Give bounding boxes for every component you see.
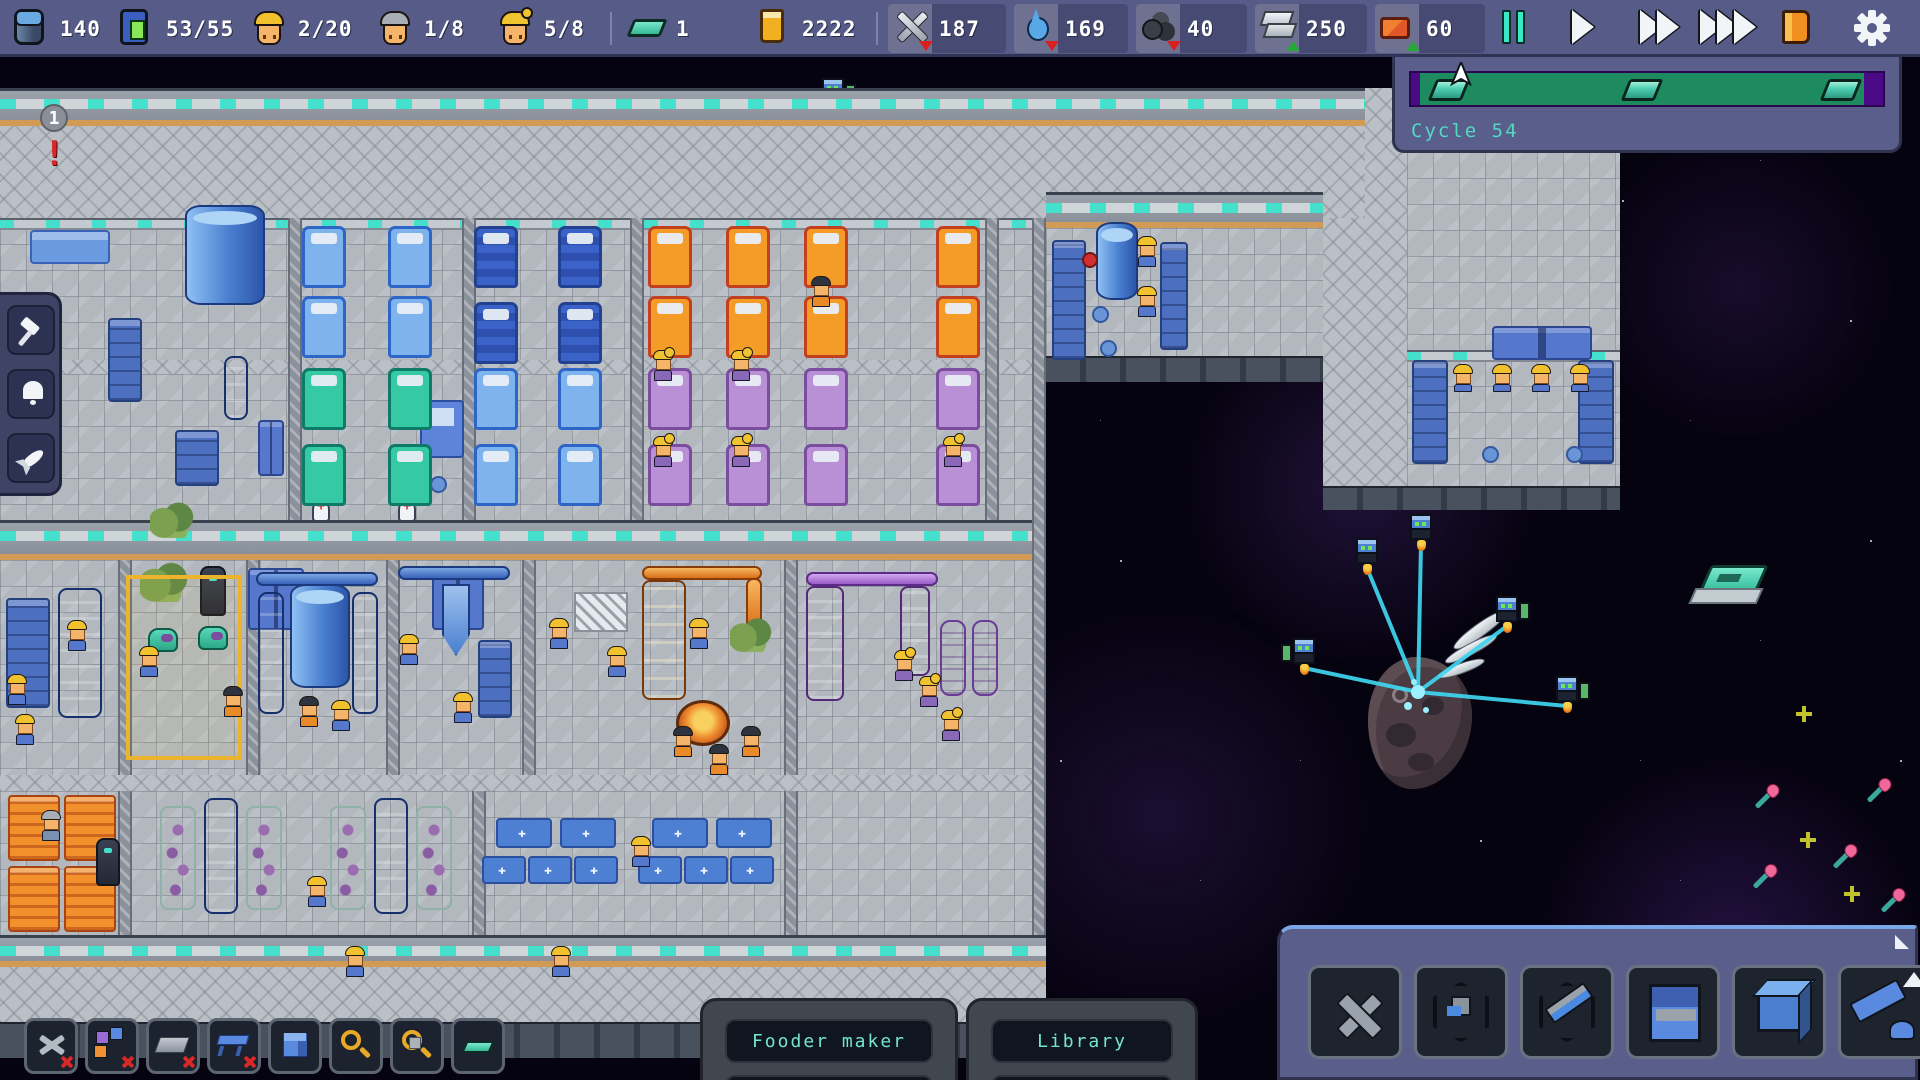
bed-build-button[interactable] <box>1626 965 1720 1059</box>
station-lightstrip <box>0 218 1046 230</box>
bed-pillow <box>397 451 423 462</box>
crew-body <box>454 712 472 723</box>
energy-cell-icon <box>120 9 156 49</box>
asteroid[interactable] <box>1368 657 1472 789</box>
zoom-out-icon <box>341 1030 361 1050</box>
crew-worker[interactable] <box>138 646 160 678</box>
crew-worker[interactable] <box>1569 364 1591 390</box>
hull-block-bit <box>1451 996 1471 1016</box>
gem-plate-item[interactable] <box>1699 565 1769 591</box>
robot-machine[interactable] <box>96 838 120 886</box>
stool-machine[interactable] <box>1100 340 1117 357</box>
mining-drone[interactable] <box>1496 596 1518 630</box>
crew-head <box>334 710 349 720</box>
crew-blonde[interactable] <box>942 436 964 468</box>
plant-machine[interactable] <box>150 500 194 538</box>
station-divider <box>288 218 302 520</box>
drone-body <box>1556 690 1578 702</box>
water-tank-icon <box>14 9 50 49</box>
ppipe-machine[interactable] <box>806 572 938 586</box>
crew-dark[interactable] <box>222 686 244 718</box>
crew-blonde[interactable] <box>730 436 752 468</box>
crew-body <box>552 966 570 977</box>
tankcol-machine[interactable] <box>58 588 102 718</box>
game-screen: ✚✚✚✚✚✚✚✚✚✚ 14053/552/201/85/812222187169… <box>0 0 1920 1080</box>
stool-machine[interactable] <box>1566 446 1583 463</box>
crew-dark[interactable] <box>708 744 730 776</box>
crew-hat <box>741 726 761 736</box>
console-machine[interactable] <box>1160 242 1188 350</box>
mining-drone[interactable] <box>1410 514 1432 548</box>
tankcol-machine[interactable] <box>258 592 284 714</box>
bed-pillow <box>657 303 683 314</box>
crew-head <box>712 754 727 764</box>
tankcol-machine[interactable] <box>374 798 408 914</box>
demolish-furniture-button[interactable] <box>207 1018 261 1074</box>
crew-worker[interactable] <box>630 836 652 868</box>
crew-worker[interactable] <box>688 618 710 650</box>
mining-drone[interactable] <box>1293 638 1315 672</box>
food-icon <box>893 9 929 49</box>
settings-button[interactable] <box>1852 8 1892 48</box>
crew-hat <box>7 674 27 684</box>
crew-body <box>8 694 26 705</box>
locker-machine[interactable] <box>258 420 284 476</box>
crew-head <box>734 446 749 456</box>
valve-machine[interactable] <box>1082 252 1098 268</box>
star <box>1120 560 1122 562</box>
asteroid-patch <box>1422 697 1444 715</box>
crew-head <box>814 286 829 296</box>
stool-machine[interactable] <box>1482 446 1499 463</box>
face <box>503 23 527 45</box>
crew-hat <box>673 726 693 736</box>
crew-worker[interactable] <box>330 700 352 732</box>
crew-worker[interactable] <box>548 618 570 650</box>
menu-item-library[interactable]: Library <box>991 1019 1173 1063</box>
purpcol-machine[interactable] <box>806 586 844 701</box>
consumable-value: 187 <box>939 17 980 41</box>
drone-cargo-pod <box>1281 644 1292 662</box>
crew-gray[interactable] <box>40 810 62 842</box>
station-hull <box>0 360 1046 374</box>
hull-block-build-button[interactable] <box>1414 965 1508 1059</box>
journal-button[interactable] <box>1782 10 1810 44</box>
bed[interactable] <box>474 226 518 288</box>
furniture-set-build-button[interactable] <box>1838 965 1920 1059</box>
tools-toolbar <box>24 1018 505 1078</box>
crew-body <box>1138 256 1156 267</box>
bed[interactable] <box>804 368 848 430</box>
cancel-build-build-button[interactable] <box>1308 965 1402 1059</box>
crew-worker[interactable] <box>1491 364 1513 390</box>
star <box>1480 840 1482 842</box>
crew-head <box>922 686 937 696</box>
crew-blonde[interactable] <box>730 350 752 382</box>
tankbig-machine[interactable] <box>1096 222 1138 300</box>
furncol-machine[interactable] <box>642 580 686 700</box>
resource-plate-button[interactable] <box>451 1018 505 1074</box>
demolish-objects-button[interactable] <box>85 1018 139 1074</box>
crew-body <box>1454 384 1472 392</box>
console-machine[interactable] <box>175 430 219 486</box>
locker-machine[interactable] <box>1492 326 1592 360</box>
star <box>1622 200 1624 202</box>
crew-hat <box>894 650 914 660</box>
crew-body <box>68 640 86 651</box>
grid-machine[interactable] <box>574 592 628 632</box>
cube-bit <box>94 1045 107 1058</box>
menu-item-fooder-maker[interactable]: Fooder maker <box>725 1019 933 1063</box>
crew-body <box>550 638 568 649</box>
stable-machine[interactable]: ✚ <box>574 856 618 884</box>
crew-body <box>654 370 672 381</box>
crew-worker[interactable] <box>66 620 88 652</box>
stat-beer-glass: 2222 <box>756 0 857 57</box>
crew-dark[interactable] <box>298 696 320 728</box>
crew-hat <box>731 436 751 446</box>
crew-worker[interactable] <box>1530 364 1552 390</box>
torpedo-item[interactable] <box>1865 777 1893 805</box>
bed[interactable] <box>474 444 518 506</box>
zoom-out-button[interactable] <box>329 1018 383 1074</box>
stable-machine[interactable]: ✚ <box>652 818 708 848</box>
tankbig-machine[interactable] <box>185 205 265 305</box>
crew-head <box>1495 374 1510 384</box>
notification-alert-button[interactable] <box>7 369 55 419</box>
coal-icon <box>1141 9 1177 49</box>
console-machine[interactable] <box>1412 360 1448 464</box>
crew-worker[interactable] <box>306 876 328 908</box>
speed-fastest-forward[interactable] <box>1700 10 1756 44</box>
crew-worker[interactable] <box>1452 364 1474 390</box>
stat-crew-worker: 2/20 <box>252 0 353 57</box>
crew-head <box>348 956 363 966</box>
bed[interactable] <box>936 226 980 288</box>
red-x-overlay <box>242 1055 256 1069</box>
consumable-food: 187 <box>893 0 980 57</box>
star <box>1690 420 1691 421</box>
crew-body <box>346 966 364 977</box>
consumable-value: 169 <box>1065 17 1106 41</box>
bed-pillow <box>567 309 593 320</box>
mouse-cursor <box>1448 62 1474 92</box>
sparkle-effect <box>1844 886 1860 902</box>
stable-machine[interactable]: ✚ <box>528 856 572 884</box>
demolish-tools-button[interactable] <box>24 1018 78 1074</box>
alert-toolbar <box>0 292 62 496</box>
bed[interactable] <box>388 296 432 358</box>
cycle-label: Cycle 54 <box>1411 120 1519 142</box>
crew-blonde[interactable] <box>652 436 674 468</box>
speed-play[interactable] <box>1572 10 1594 44</box>
crew-head <box>1140 246 1155 256</box>
demolish-furniture-icon <box>217 1035 250 1045</box>
crew-head <box>734 360 749 370</box>
crew-blonde[interactable] <box>918 676 940 708</box>
station-wallband <box>1046 192 1323 228</box>
bed[interactable] <box>558 444 602 506</box>
tankcol-machine[interactable] <box>352 592 378 714</box>
crew-worker[interactable] <box>344 946 366 978</box>
crew-hat <box>689 618 709 628</box>
crew-hat <box>653 436 673 446</box>
crew-hat <box>1570 364 1590 374</box>
bed-pillow <box>567 375 593 386</box>
bed[interactable] <box>474 368 518 430</box>
crew-body <box>654 456 672 467</box>
crew-body <box>632 856 650 867</box>
crew-blonde-icon <box>498 9 532 49</box>
plant-machine[interactable] <box>730 616 772 652</box>
console-machine[interactable] <box>108 318 142 402</box>
bed[interactable] <box>388 368 432 430</box>
demolish-floor-button[interactable] <box>146 1018 200 1074</box>
stable-machine[interactable]: ✚ <box>716 818 772 848</box>
build-block-icon <box>283 1033 307 1057</box>
bed-icon <box>1649 984 1701 1042</box>
crew-body <box>300 716 318 727</box>
crew-head <box>552 628 567 638</box>
crew-body <box>332 720 350 731</box>
glass-machine[interactable] <box>416 806 452 910</box>
resource-plate-icon <box>461 1041 494 1053</box>
trend-down-icon <box>1045 41 1059 51</box>
glass-machine[interactable] <box>160 806 196 910</box>
drone-screen <box>1356 538 1378 552</box>
stable-machine[interactable]: ✚ <box>496 818 552 848</box>
crew-dark[interactable] <box>810 276 832 308</box>
crew-head <box>310 886 325 896</box>
tankcol-machine[interactable] <box>204 798 238 914</box>
consumable-value: 250 <box>1306 17 1347 41</box>
crew-blonde[interactable] <box>893 650 915 682</box>
crew-dark[interactable] <box>740 726 762 758</box>
crew-body <box>1493 384 1511 392</box>
stat-value: 53/55 <box>166 17 234 41</box>
machine-menu-panel: Fooder maker <box>700 998 958 1080</box>
crew-hat <box>1453 364 1473 374</box>
bed-pillow <box>567 233 593 244</box>
sparkle-effect <box>1796 706 1812 722</box>
stable-machine[interactable]: ✚ <box>560 818 616 848</box>
cube-bit <box>96 1031 109 1044</box>
stable-machine[interactable]: ✚ <box>482 856 526 884</box>
bed[interactable] <box>302 226 346 288</box>
build-block-button[interactable] <box>268 1018 322 1074</box>
station-divider <box>522 560 536 775</box>
water-drop-icon <box>1023 9 1049 43</box>
bed[interactable] <box>936 368 980 430</box>
crew-head <box>456 702 471 712</box>
stool-bit <box>1889 1020 1915 1040</box>
bed[interactable] <box>936 296 980 358</box>
crew-head <box>44 820 59 830</box>
crew-blonde[interactable] <box>940 710 962 742</box>
crew-head <box>70 630 85 640</box>
glass-machine[interactable] <box>330 806 366 910</box>
hair-bun <box>521 7 533 19</box>
star <box>1760 160 1761 161</box>
topbar-separator <box>876 12 878 45</box>
bed[interactable] <box>388 226 432 288</box>
station-darkband <box>1046 356 1323 382</box>
crew-worker[interactable] <box>6 674 28 706</box>
crew-head <box>692 628 707 638</box>
crew-head <box>676 736 691 746</box>
crew-body <box>920 696 938 707</box>
crew-body <box>944 456 962 467</box>
construction-alert-button[interactable] <box>7 305 55 355</box>
glass-machine[interactable] <box>246 806 282 910</box>
crew-blonde[interactable] <box>652 350 674 382</box>
menu-item-hidden[interactable] <box>725 1075 933 1080</box>
bed[interactable] <box>302 368 346 430</box>
block-build-button[interactable] <box>1732 965 1826 1059</box>
stool-machine[interactable] <box>430 476 447 493</box>
station-hull <box>0 775 1046 791</box>
station-divider <box>784 560 798 775</box>
crew-head <box>1534 374 1549 384</box>
trend-up-icon <box>1286 41 1300 51</box>
beer-glass-icon <box>760 9 784 43</box>
metal-icon <box>1260 9 1294 39</box>
mining-drone[interactable] <box>1556 676 1578 710</box>
gear-icon <box>1860 16 1884 40</box>
drone-thruster-flame <box>1417 540 1426 551</box>
purpcap-machine[interactable] <box>940 620 966 696</box>
asteroid-patch <box>1408 753 1434 771</box>
purpcap-machine[interactable] <box>972 620 998 696</box>
star <box>1900 760 1902 762</box>
star <box>1060 760 1062 762</box>
crew-worker[interactable] <box>14 714 36 746</box>
crew-body <box>42 830 60 841</box>
drone-body <box>1293 652 1315 664</box>
crew-body <box>16 734 34 745</box>
stool-machine[interactable] <box>1092 306 1109 323</box>
bed[interactable] <box>302 444 346 506</box>
more-options-badge <box>1903 972 1920 987</box>
crew-worker[interactable] <box>452 692 474 724</box>
tankcol-machine[interactable] <box>224 356 248 420</box>
crew-blonde-icon <box>498 9 534 49</box>
bed[interactable] <box>302 296 346 358</box>
sparkle-effect <box>1800 832 1816 848</box>
crew-body <box>690 638 708 649</box>
crew-worker[interactable] <box>550 946 572 978</box>
desk-machine[interactable] <box>30 230 110 264</box>
station-divider <box>118 791 132 935</box>
console-machine[interactable] <box>1052 240 1086 360</box>
speed-fast-forward[interactable] <box>1640 10 1679 44</box>
wall-build-button[interactable] <box>1520 965 1614 1059</box>
stat-value: 1 <box>676 17 690 41</box>
wall-light-strip <box>0 946 1046 956</box>
crew-hat <box>1492 364 1512 374</box>
station-divider <box>630 218 644 520</box>
alien-machine[interactable] <box>198 626 228 650</box>
hammer-icon <box>19 319 45 345</box>
crew-worker[interactable] <box>1136 286 1158 318</box>
stable-machine[interactable]: ✚ <box>730 856 774 884</box>
pipe-machine[interactable] <box>398 566 510 580</box>
bed[interactable] <box>558 226 602 288</box>
drone-thruster-flame <box>1563 702 1572 713</box>
bed[interactable] <box>474 302 518 364</box>
bed[interactable] <box>726 226 770 288</box>
drone-body <box>1496 610 1518 622</box>
food-icon <box>893 9 927 43</box>
crew-worker[interactable] <box>1136 236 1158 268</box>
crew-hat <box>1137 286 1157 296</box>
crew-hat <box>607 646 627 656</box>
station-divider <box>784 791 798 935</box>
bed-pillow <box>311 375 337 386</box>
console-machine[interactable] <box>478 640 512 718</box>
bed-pillow <box>483 375 509 386</box>
machine-menu-panel: Library <box>966 998 1198 1080</box>
bed[interactable] <box>558 302 602 364</box>
crew-body <box>308 896 326 907</box>
crew-head <box>610 656 625 666</box>
crew-worker[interactable] <box>398 634 420 666</box>
bed-pillow <box>813 451 839 462</box>
consumable-coal: 40 <box>1141 0 1214 57</box>
consumable-metal: 250 <box>1260 0 1347 57</box>
tankbig-machine[interactable] <box>290 584 350 688</box>
brick-icon <box>1380 9 1416 49</box>
asteroid-patch <box>1386 723 1416 747</box>
water-tank-icon <box>14 9 44 45</box>
bed-pillow <box>397 375 423 386</box>
zoom-block-button[interactable] <box>390 1018 444 1074</box>
star <box>1870 540 1872 542</box>
bed[interactable] <box>388 444 432 506</box>
crew-head <box>744 736 759 746</box>
drone-screen <box>1496 596 1518 610</box>
bed[interactable] <box>558 368 602 430</box>
brick-icon <box>1380 17 1410 39</box>
star <box>1760 640 1761 641</box>
bed-pillow <box>483 233 509 244</box>
bed[interactable] <box>648 226 692 288</box>
crew-worker[interactable] <box>606 646 628 678</box>
crew-hat <box>943 436 963 446</box>
speed-pause[interactable] <box>1502 10 1525 44</box>
opipe-machine[interactable] <box>642 566 762 580</box>
bed-pillow <box>945 233 971 244</box>
crew-dark[interactable] <box>672 726 694 758</box>
energy-cell-icon <box>120 9 148 45</box>
menu-item-hidden[interactable] <box>991 1075 1173 1080</box>
shuttle-alert-button[interactable] <box>7 433 55 483</box>
crew-hat <box>1137 236 1157 246</box>
drone-screen <box>1293 638 1315 652</box>
mining-drone[interactable] <box>1356 538 1378 572</box>
crew-head <box>897 660 912 670</box>
crew-head <box>946 446 961 456</box>
olock-machine[interactable] <box>8 866 60 932</box>
bed-pillow <box>657 233 683 244</box>
stat-value: 2/20 <box>298 17 353 41</box>
bed[interactable] <box>804 444 848 506</box>
bed-pillow <box>311 451 337 462</box>
crew-hat <box>551 946 571 956</box>
crew-body <box>674 746 692 757</box>
stable-machine[interactable]: ✚ <box>684 856 728 884</box>
station-darkband <box>1407 486 1620 510</box>
